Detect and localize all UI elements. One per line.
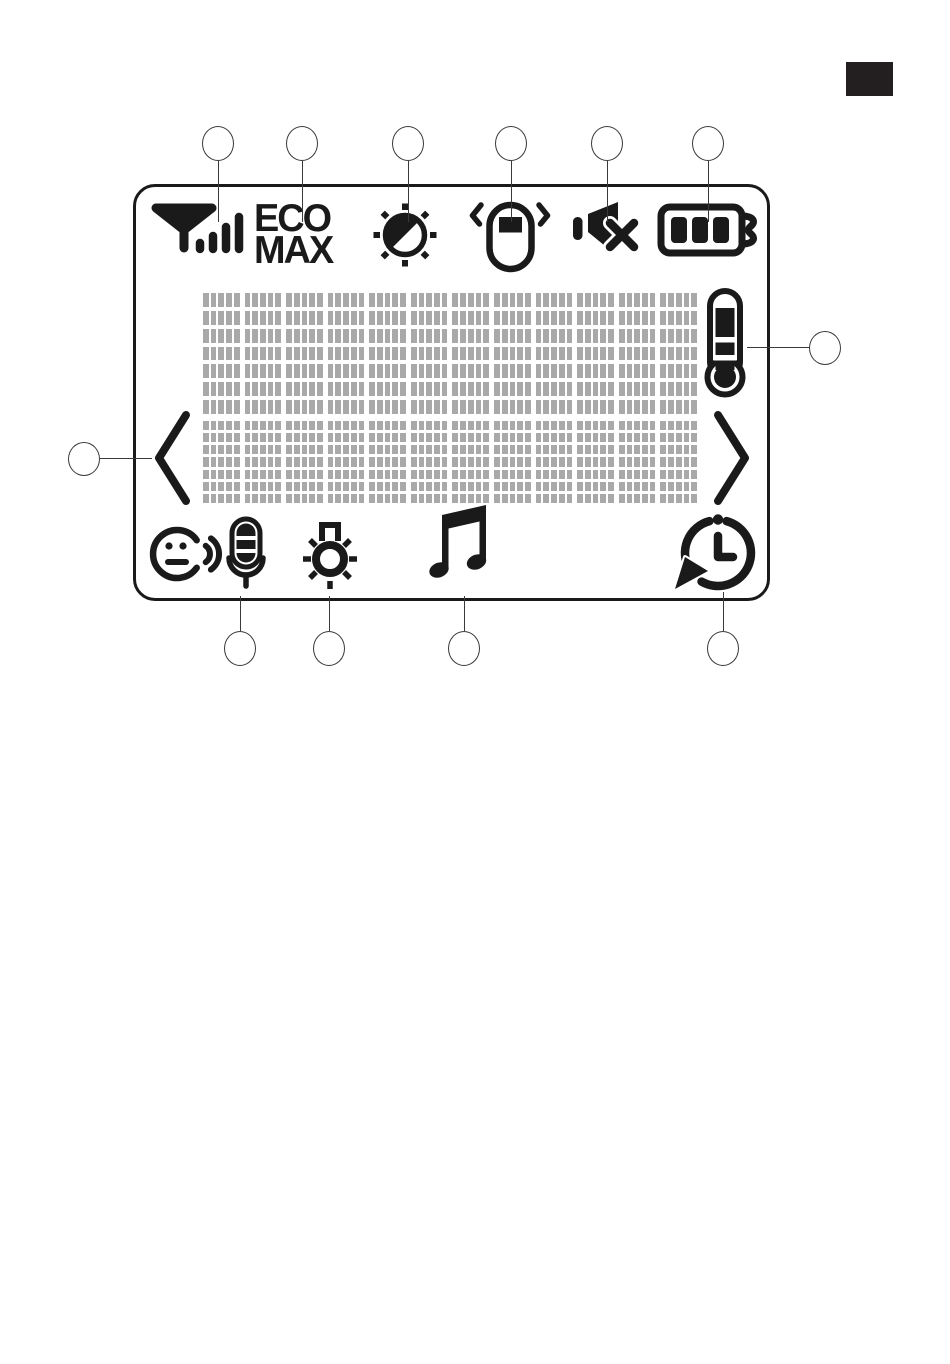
pixel-segment — [392, 382, 398, 396]
pixel-segment — [668, 494, 674, 503]
pixel-segment — [426, 470, 432, 479]
pixel-segment — [203, 445, 209, 454]
pixel-segment — [317, 494, 323, 503]
pixel-segment — [351, 293, 357, 307]
pixel-segment — [275, 421, 281, 430]
pixel-segment — [392, 433, 398, 442]
pixel-segment — [567, 445, 573, 454]
pixel-segment — [434, 311, 440, 325]
pixel-segment — [245, 329, 251, 343]
pixel-segment — [660, 382, 666, 396]
pixel-segment — [525, 470, 531, 479]
pixel-segment — [309, 482, 315, 491]
pixel-segment — [426, 400, 432, 414]
pixel-segment — [660, 400, 666, 414]
pixel-segment — [385, 382, 391, 396]
pixel-segment — [650, 364, 656, 378]
pixel-segment — [328, 445, 334, 454]
pixel-segment — [419, 293, 425, 307]
pixel-segment — [426, 329, 432, 343]
pixel-segment — [442, 457, 448, 466]
pixel-segment — [211, 382, 217, 396]
pixel-segment — [268, 494, 274, 503]
pixel-segment — [268, 470, 274, 479]
pixel-segment — [494, 482, 500, 491]
pixel-segment — [577, 482, 583, 491]
pixel-segment — [442, 470, 448, 479]
eco-max-text: ECO MAX — [254, 203, 332, 267]
pixel-segment — [369, 293, 375, 307]
pixel-segment — [351, 421, 357, 430]
pixel-character-cell — [411, 293, 448, 414]
pixel-segment — [275, 329, 281, 343]
pixel-segment — [411, 364, 417, 378]
pixel-segment — [452, 382, 458, 396]
pixel-segment — [567, 400, 573, 414]
pixel-segment — [385, 457, 391, 466]
pixel-segment — [676, 433, 682, 442]
pixel-segment — [234, 347, 240, 361]
pixel-segment — [525, 494, 531, 503]
pixel-segment — [400, 457, 406, 466]
pixel-segment — [634, 329, 640, 343]
pixel-segment — [684, 445, 690, 454]
pixel-segment — [385, 400, 391, 414]
pixel-segment — [434, 329, 440, 343]
pixel-segment — [650, 329, 656, 343]
pixel-segment — [218, 470, 224, 479]
pixel-segment — [593, 382, 599, 396]
pixel-segment — [543, 445, 549, 454]
pixel-segment — [434, 382, 440, 396]
pixel-segment — [627, 400, 633, 414]
pixel-segment — [517, 482, 523, 491]
pixel-segment — [483, 421, 489, 430]
pixel-segment — [442, 329, 448, 343]
pixel-segment — [385, 421, 391, 430]
pixel-segment — [203, 482, 209, 491]
pixel-segment — [211, 470, 217, 479]
pixel-segment — [317, 445, 323, 454]
pixel-segment — [608, 311, 614, 325]
pixel-segment — [525, 482, 531, 491]
pixel-character-cell — [411, 421, 448, 503]
pixel-segment — [343, 329, 349, 343]
pixel-segment — [426, 382, 432, 396]
pixel-segment — [650, 421, 656, 430]
pixel-segment — [585, 400, 591, 414]
pixel-segment — [483, 400, 489, 414]
pixel-segment — [260, 382, 266, 396]
pixel-segment — [203, 311, 209, 325]
pixel-segment — [668, 311, 674, 325]
pixel-segment — [419, 311, 425, 325]
pixel-segment — [309, 329, 315, 343]
pixel-segment — [385, 311, 391, 325]
pixel-segment — [642, 293, 648, 307]
pixel-segment — [211, 457, 217, 466]
pixel-segment — [642, 421, 648, 430]
pixel-segment — [460, 457, 466, 466]
pixel-segment — [260, 329, 266, 343]
pixel-segment — [619, 433, 625, 442]
pixel-segment — [377, 364, 383, 378]
pixel-segment — [634, 445, 640, 454]
pixel-segment — [494, 494, 500, 503]
pixel-segment — [517, 470, 523, 479]
pixel-segment — [585, 311, 591, 325]
pixel-segment — [385, 347, 391, 361]
pixel-segment — [684, 433, 690, 442]
pixel-segment — [627, 482, 633, 491]
leader-line — [708, 161, 709, 222]
pixel-segment — [494, 445, 500, 454]
pixel-segment — [676, 293, 682, 307]
leader-line — [464, 596, 465, 631]
pixel-segment — [245, 445, 251, 454]
pixel-segment — [559, 293, 565, 307]
pixel-segment — [328, 364, 334, 378]
pixel-segment — [260, 482, 266, 491]
pixel-segment — [494, 364, 500, 378]
pixel-segment — [510, 445, 516, 454]
pixel-segment — [543, 311, 549, 325]
pixel-segment — [452, 329, 458, 343]
pixel-segment — [343, 494, 349, 503]
pixel-segment — [650, 382, 656, 396]
pixel-segment — [226, 311, 232, 325]
pixel-segment — [468, 433, 474, 442]
pixel-segment — [442, 421, 448, 430]
pixel-segment — [275, 293, 281, 307]
pixel-segment — [634, 382, 640, 396]
pixel-segment — [400, 470, 406, 479]
pixel-segment — [335, 457, 341, 466]
pixel-segment — [302, 311, 308, 325]
pixel-segment — [676, 445, 682, 454]
pixel-segment — [483, 329, 489, 343]
pixel-segment — [245, 382, 251, 396]
pixel-segment — [608, 382, 614, 396]
pixel-segment — [211, 482, 217, 491]
pixel-segment — [483, 382, 489, 396]
pixel-segment — [691, 293, 697, 307]
pixel-segment — [203, 347, 209, 361]
pixel-segment — [642, 445, 648, 454]
pixel-segment — [551, 364, 557, 378]
pixel-segment — [559, 382, 565, 396]
right-arrow-icon — [706, 408, 758, 508]
pixel-segment — [411, 457, 417, 466]
pixel-segment — [419, 470, 425, 479]
leader-line — [302, 161, 303, 222]
pixel-segment — [502, 482, 508, 491]
manual-page: ECO MAX — [0, 0, 950, 1364]
pixel-segment — [294, 445, 300, 454]
pixel-segment — [359, 364, 365, 378]
pixel-segment — [302, 470, 308, 479]
pixel-segment — [452, 482, 458, 491]
pixel-segment — [260, 400, 266, 414]
pixel-segment — [203, 470, 209, 479]
pixel-segment — [460, 311, 466, 325]
pixel-segment — [460, 433, 466, 442]
pixel-segment — [286, 445, 292, 454]
pixel-segment — [483, 482, 489, 491]
pixel-segment — [328, 382, 334, 396]
pixel-segment — [619, 382, 625, 396]
pixel-segment — [426, 494, 432, 503]
pixel-segment — [600, 382, 606, 396]
pixel-segment — [642, 311, 648, 325]
pixel-segment — [642, 482, 648, 491]
pixel-segment — [400, 293, 406, 307]
pixel-segment — [600, 329, 606, 343]
pixel-character-cell — [536, 421, 573, 503]
vibration-icon — [468, 196, 552, 274]
pixel-segment — [309, 400, 315, 414]
pixel-segment — [593, 400, 599, 414]
pixel-segment — [536, 293, 542, 307]
left-arrow-icon — [146, 408, 198, 508]
pixel-segment — [567, 364, 573, 378]
pixel-segment — [676, 382, 682, 396]
pixel-segment — [226, 445, 232, 454]
pixel-segment — [608, 364, 614, 378]
pixel-segment — [252, 445, 258, 454]
pixel-segment — [335, 400, 341, 414]
pixel-segment — [369, 445, 375, 454]
feed-timer-icon — [674, 508, 762, 600]
pixel-segment — [608, 482, 614, 491]
pixel-character-cell — [245, 293, 282, 414]
pixel-segment — [419, 347, 425, 361]
pixel-segment — [369, 482, 375, 491]
pixel-segment — [335, 421, 341, 430]
pixel-segment — [434, 293, 440, 307]
pixel-segment — [328, 482, 334, 491]
pixel-segment — [676, 457, 682, 466]
pixel-segment — [642, 470, 648, 479]
pixel-segment — [302, 445, 308, 454]
pixel-segment — [203, 457, 209, 466]
leader-line — [329, 596, 330, 631]
pixel-segment — [510, 494, 516, 503]
pixel-segment — [218, 382, 224, 396]
pixel-segment — [392, 482, 398, 491]
pixel-segment — [627, 445, 633, 454]
pixel-segment — [543, 293, 549, 307]
pixel-character-cell — [577, 293, 614, 414]
pixel-segment — [593, 433, 599, 442]
pixel-segment — [668, 364, 674, 378]
pixel-segment — [234, 457, 240, 466]
pixel-segment — [691, 433, 697, 442]
pixel-segment — [577, 494, 583, 503]
pixel-segment — [543, 433, 549, 442]
pixel-segment — [377, 482, 383, 491]
brightness-icon — [372, 202, 438, 268]
pixel-segment — [211, 329, 217, 343]
pixel-segment — [252, 433, 258, 442]
pixel-segment — [585, 293, 591, 307]
pixel-segment — [309, 421, 315, 430]
pixel-segment — [593, 494, 599, 503]
pixel-segment — [351, 311, 357, 325]
pixel-segment — [476, 445, 482, 454]
pixel-segment — [483, 494, 489, 503]
pixel-segment — [218, 347, 224, 361]
pixel-segment — [286, 494, 292, 503]
pixel-segment — [286, 347, 292, 361]
pixel-segment — [343, 482, 349, 491]
pixel-segment — [434, 347, 440, 361]
pixel-segment — [650, 311, 656, 325]
pixel-segment — [494, 347, 500, 361]
pixel-segment — [525, 347, 531, 361]
pixel-segment — [275, 482, 281, 491]
pixel-segment — [252, 400, 258, 414]
leader-line — [240, 596, 241, 631]
pixel-segment — [268, 421, 274, 430]
pixel-segment — [442, 347, 448, 361]
pixel-character-cell — [286, 293, 323, 414]
pixel-segment — [619, 457, 625, 466]
pixel-segment — [525, 457, 531, 466]
pixel-segment — [335, 433, 341, 442]
pixel-segment — [286, 293, 292, 307]
pixel-segment — [460, 400, 466, 414]
pixel-segment — [476, 433, 482, 442]
pixel-segment — [567, 311, 573, 325]
pixel-segment — [426, 445, 432, 454]
pixel-segment — [525, 364, 531, 378]
pixel-segment — [260, 364, 266, 378]
pixel-segment — [400, 445, 406, 454]
pixel-segment — [234, 382, 240, 396]
pixel-segment — [377, 311, 383, 325]
pixel-segment — [245, 482, 251, 491]
pixel-segment — [543, 482, 549, 491]
pixel-segment — [377, 400, 383, 414]
pixel-segment — [476, 494, 482, 503]
pixel-segment — [502, 293, 508, 307]
pixel-segment — [660, 445, 666, 454]
pixel-segment — [619, 364, 625, 378]
pixel-segment — [411, 347, 417, 361]
pixel-segment — [226, 457, 232, 466]
pixel-segment — [585, 364, 591, 378]
pixel-segment — [577, 382, 583, 396]
pixel-segment — [252, 421, 258, 430]
pixel-segment — [634, 293, 640, 307]
pixel-segment — [650, 433, 656, 442]
pixel-segment — [642, 364, 648, 378]
pixel-segment — [551, 382, 557, 396]
pixel-segment — [668, 382, 674, 396]
pixel-segment — [309, 470, 315, 479]
pixel-segment — [419, 382, 425, 396]
pixel-segment — [226, 494, 232, 503]
pixel-segment — [434, 421, 440, 430]
pixel-segment — [684, 329, 690, 343]
pixel-segment — [335, 445, 341, 454]
pixel-segment — [252, 311, 258, 325]
pixel-segment — [691, 311, 697, 325]
pixel-segment — [510, 364, 516, 378]
voice-microphone-icon — [146, 511, 270, 601]
pixel-segment — [468, 457, 474, 466]
pixel-segment — [608, 329, 614, 343]
pixel-segment — [385, 494, 391, 503]
pixel-segment — [369, 421, 375, 430]
pixel-segment — [585, 470, 591, 479]
pixel-segment — [218, 293, 224, 307]
pixel-segment — [385, 433, 391, 442]
pixel-segment — [600, 347, 606, 361]
pixel-segment — [593, 311, 599, 325]
pixel-segment — [226, 482, 232, 491]
pixel-segment — [411, 329, 417, 343]
pixel-segment — [634, 457, 640, 466]
pixel-segment — [218, 421, 224, 430]
pixel-segment — [634, 482, 640, 491]
pixel-segment — [525, 311, 531, 325]
pixel-segment — [494, 433, 500, 442]
pixel-segment — [302, 494, 308, 503]
pixel-segment — [328, 329, 334, 343]
pixel-segment — [385, 293, 391, 307]
pixel-segment — [309, 293, 315, 307]
pixel-segment — [351, 329, 357, 343]
pixel-segment — [468, 311, 474, 325]
lullaby-note-icon — [424, 504, 494, 588]
pixel-segment — [294, 347, 300, 361]
pixel-segment — [510, 470, 516, 479]
pixel-segment — [309, 364, 315, 378]
pixel-segment — [585, 494, 591, 503]
pixel-segment — [369, 470, 375, 479]
pixel-segment — [211, 400, 217, 414]
pixel-segment — [517, 293, 523, 307]
pixel-segment — [551, 311, 557, 325]
pixel-segment — [567, 470, 573, 479]
pixel-segment — [419, 494, 425, 503]
pixel-segment — [577, 445, 583, 454]
pixel-segment — [226, 382, 232, 396]
pixel-segment — [593, 470, 599, 479]
pixel-segment — [377, 445, 383, 454]
pixel-segment — [252, 470, 258, 479]
callout-top-5 — [591, 126, 623, 161]
pixel-segment — [369, 364, 375, 378]
pixel-segment — [593, 364, 599, 378]
pixel-segment — [536, 311, 542, 325]
pixel-segment — [302, 457, 308, 466]
pixel-segment — [510, 293, 516, 307]
pixel-segment — [392, 347, 398, 361]
pixel-segment — [211, 433, 217, 442]
pixel-segment — [577, 421, 583, 430]
pixel-segment — [426, 364, 432, 378]
pixel-segment — [218, 400, 224, 414]
pixel-segment — [593, 329, 599, 343]
pixel-segment — [211, 445, 217, 454]
pixel-segment — [567, 433, 573, 442]
pixel-segment — [245, 433, 251, 442]
pixel-segment — [377, 470, 383, 479]
pixel-segment — [275, 445, 281, 454]
